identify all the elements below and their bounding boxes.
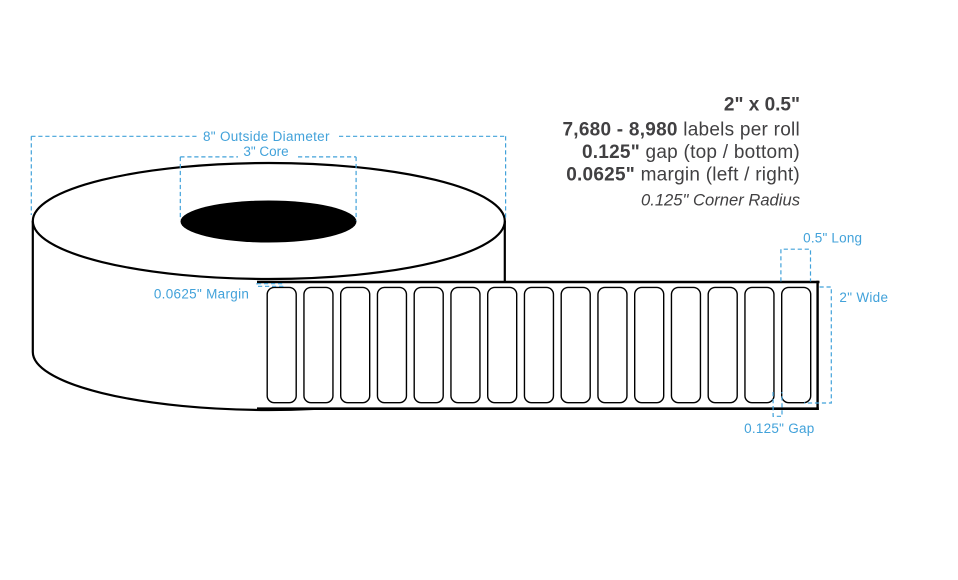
- svg-text:2" x 0.5": 2" x 0.5": [724, 95, 800, 116]
- svg-text:3" Core: 3" Core: [243, 144, 288, 159]
- svg-text:0.125" Gap: 0.125" Gap: [744, 421, 814, 436]
- svg-text:0.5" Long: 0.5" Long: [803, 230, 862, 245]
- svg-text:2" Wide: 2" Wide: [839, 290, 888, 305]
- svg-text:8" Outside Diameter: 8" Outside Diameter: [203, 129, 330, 144]
- svg-text:7,680 - 8,980 labels per roll: 7,680 - 8,980 labels per roll: [562, 119, 800, 140]
- svg-text:0.125" gap (top / bottom): 0.125" gap (top / bottom): [582, 142, 800, 163]
- svg-text:0.125" Corner Radius: 0.125" Corner Radius: [641, 191, 800, 210]
- svg-text:0.0625" margin (left / right): 0.0625" margin (left / right): [566, 165, 800, 186]
- svg-text:0.0625" Margin: 0.0625" Margin: [154, 287, 249, 302]
